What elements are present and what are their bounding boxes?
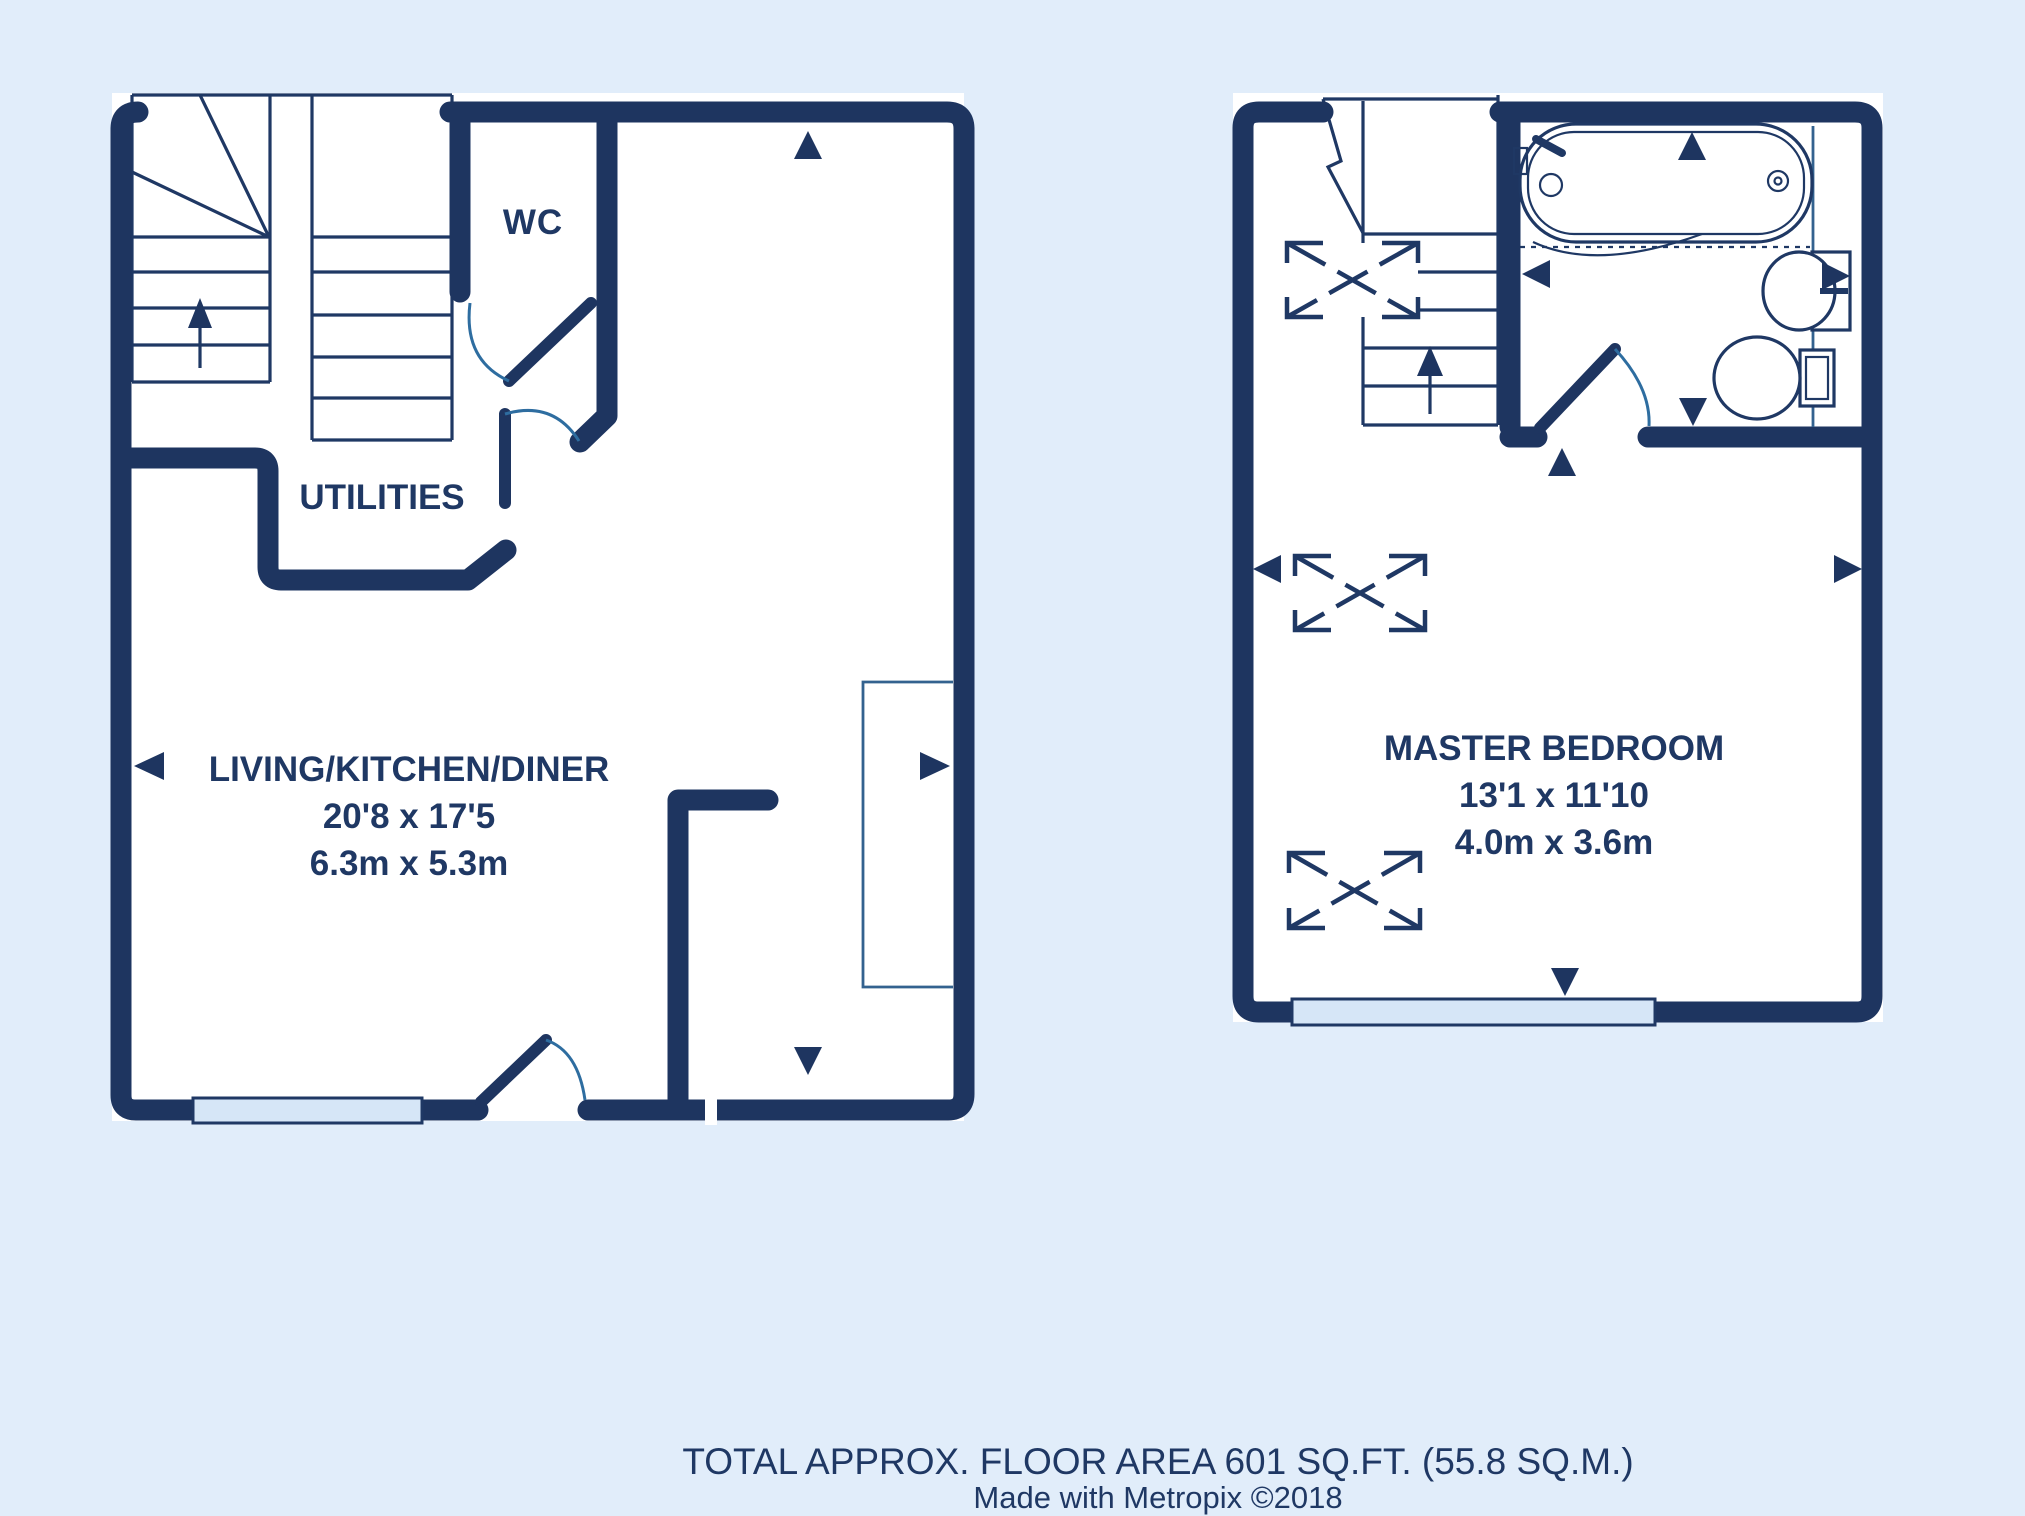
wardrobe — [1295, 556, 1425, 630]
ground-floor-footprint — [112, 93, 964, 1121]
wall-junction-tick — [705, 1096, 717, 1125]
room-label-living: LIVING/KITCHEN/DINER — [209, 750, 610, 789]
toilet-bowl — [1714, 337, 1800, 419]
floorplan-canvas: WC UTILITIES LIVING/KITCHEN/DINER 20'8 x… — [0, 0, 2025, 1516]
window — [1292, 999, 1655, 1025]
sink — [1763, 252, 1850, 330]
toilet — [1714, 337, 1834, 419]
window — [193, 1098, 422, 1123]
wardrobe — [1289, 853, 1420, 928]
floorplan-page: WC UTILITIES LIVING/KITCHEN/DINER 20'8 x… — [0, 0, 2025, 1516]
bathtub — [1514, 124, 1812, 255]
room-dim-imperial: 13'1 x 11'10 — [1459, 776, 1649, 815]
ground-floor-plan: WC UTILITIES LIVING/KITCHEN/DINER 20'8 x… — [112, 93, 964, 1125]
wardrobe — [1287, 243, 1418, 317]
first-floor-plan: MASTER BEDROOM 13'1 x 11'10 4.0m x 3.6m — [1233, 93, 1883, 1025]
footer: TOTAL APPROX. FLOOR AREA 601 SQ.FT. (55.… — [682, 1441, 1633, 1515]
credit-text: Made with Metropix ©2018 — [973, 1480, 1342, 1515]
room-label-utilities: UTILITIES — [299, 478, 464, 517]
room-label-master-bedroom: MASTER BEDROOM — [1384, 729, 1724, 768]
room-dim-imperial: 20'8 x 17'5 — [323, 797, 495, 836]
room-label-wc: WC — [503, 203, 563, 242]
room-dim-metric: 6.3m x 5.3m — [310, 844, 508, 883]
room-dim-metric: 4.0m x 3.6m — [1455, 823, 1653, 862]
total-floor-area-text: TOTAL APPROX. FLOOR AREA 601 SQ.FT. (55.… — [682, 1441, 1633, 1482]
